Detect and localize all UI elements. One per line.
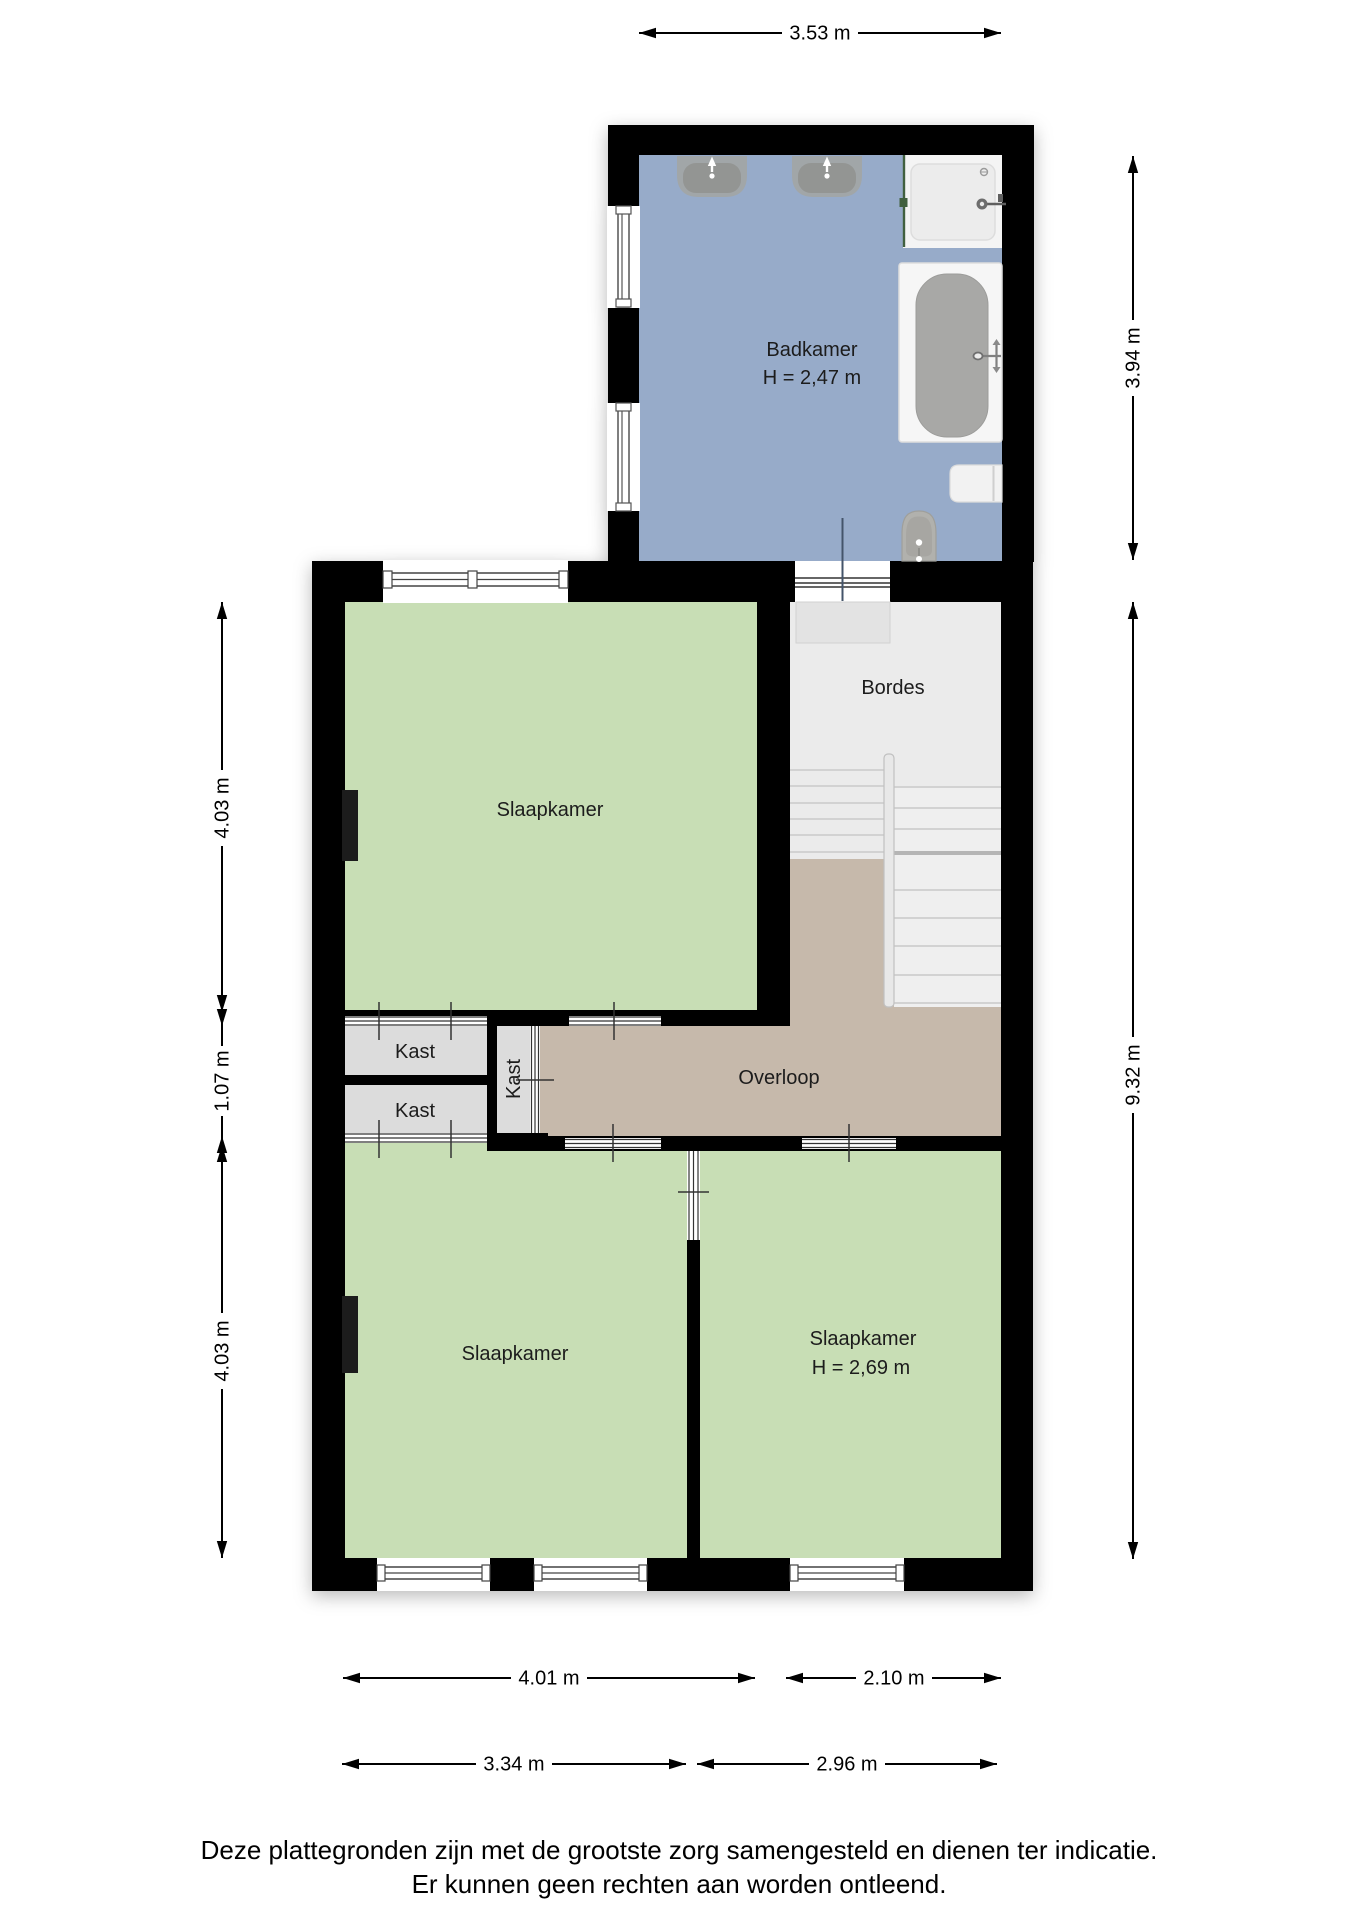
svg-text:Bordes: Bordes — [861, 677, 924, 699]
svg-text:2.10 m: 2.10 m — [863, 1668, 924, 1690]
svg-text:Kast: Kast — [395, 1100, 435, 1122]
svg-text:Slaapkamer: Slaapkamer — [462, 1343, 569, 1365]
svg-text:4.03 m: 4.03 m — [212, 1320, 234, 1381]
svg-text:4.01 m: 4.01 m — [518, 1668, 579, 1690]
svg-text:Kast: Kast — [503, 1059, 525, 1099]
svg-text:3.53 m: 3.53 m — [789, 23, 850, 45]
svg-text:Slaapkamer: Slaapkamer — [497, 799, 604, 821]
svg-text:4.03 m: 4.03 m — [212, 777, 234, 838]
svg-text:1.07 m: 1.07 m — [212, 1050, 234, 1111]
svg-text:Deze plattegronden zijn met de: Deze plattegronden zijn met de grootste … — [201, 1835, 1158, 1865]
svg-text:3.34 m: 3.34 m — [483, 1754, 544, 1776]
svg-text:Er kunnen geen rechten aan wor: Er kunnen geen rechten aan worden ontlee… — [412, 1869, 947, 1899]
svg-text:2.96 m: 2.96 m — [816, 1754, 877, 1776]
svg-text:3.94 m: 3.94 m — [1123, 327, 1145, 388]
svg-text:Slaapkamer: Slaapkamer — [810, 1328, 917, 1350]
svg-text:H = 2,69 m: H = 2,69 m — [812, 1357, 910, 1379]
svg-text:Badkamer: Badkamer — [766, 339, 857, 361]
svg-text:H = 2,47 m: H = 2,47 m — [763, 367, 861, 389]
svg-text:Overloop: Overloop — [738, 1067, 819, 1089]
svg-text:Kast: Kast — [395, 1041, 435, 1063]
svg-text:9.32 m: 9.32 m — [1123, 1044, 1145, 1105]
